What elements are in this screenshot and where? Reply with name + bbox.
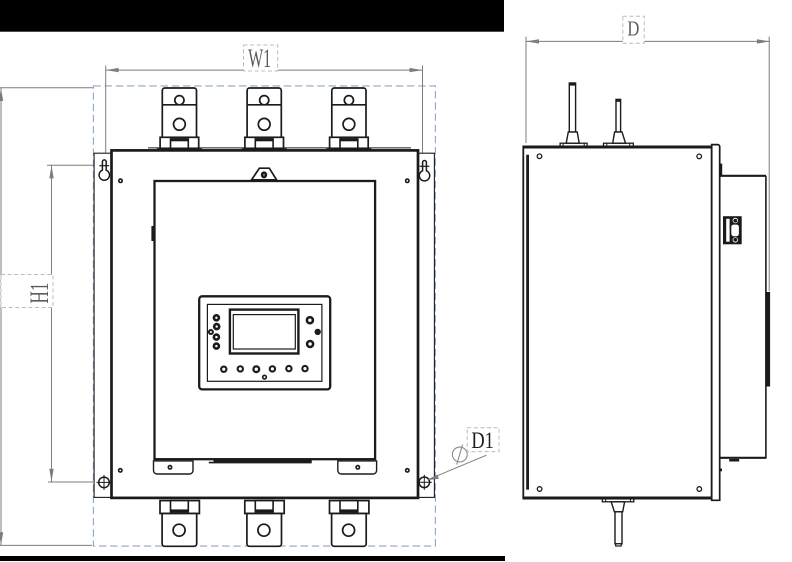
svg-text:D: D [627, 17, 639, 41]
svg-text:D1: D1 [471, 428, 494, 453]
svg-text:H1: H1 [25, 283, 54, 304]
svg-text:W1: W1 [248, 44, 271, 73]
